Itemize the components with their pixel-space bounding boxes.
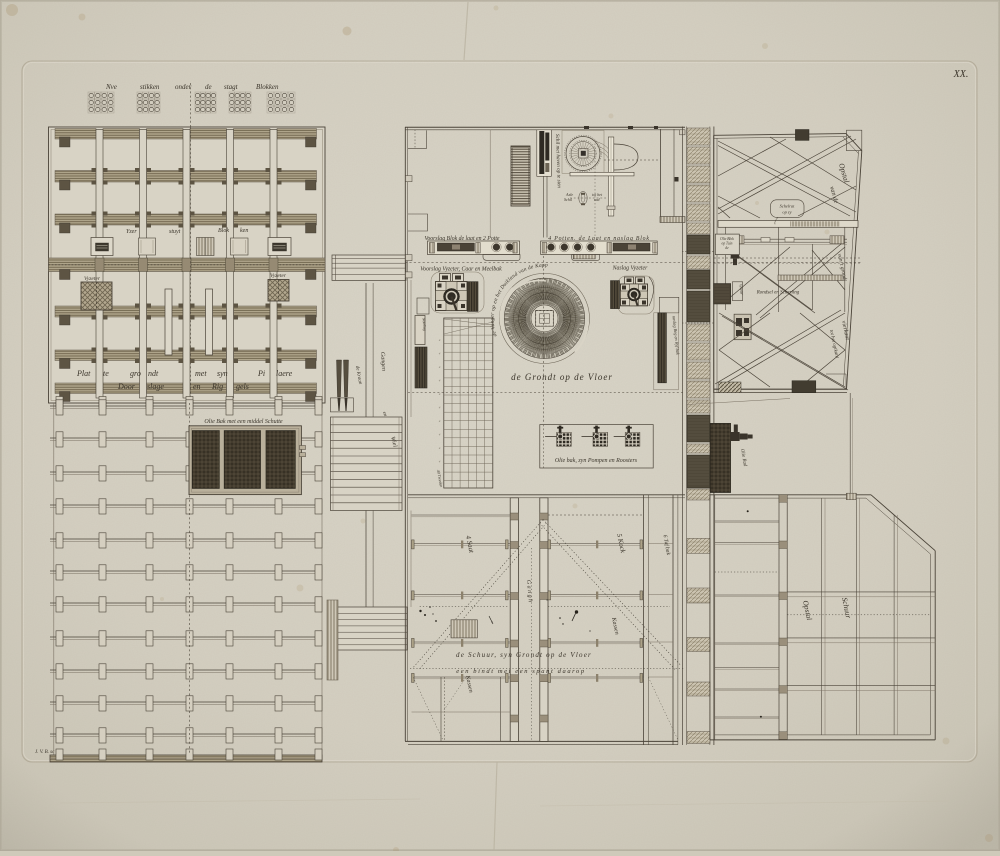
svg-text:de Schuur, syn Grondt op de Vl: de Schuur, syn Grondt op de Vloer (456, 651, 592, 659)
svg-text:Blokken: Blokken (256, 83, 279, 91)
svg-text:de Grondt op de Vloer: de Grondt op de Vloer (511, 372, 613, 382)
svg-text:op Tuin: op Tuin (722, 242, 733, 246)
svg-text:de: de (205, 83, 212, 91)
svg-text:Rig: Rig (211, 382, 223, 391)
svg-text:een bindt met een spant daarop: een bindt met een spant daarop (456, 668, 586, 675)
svg-text:laere: laere (276, 369, 293, 378)
svg-text:stuyt: stuyt (169, 229, 181, 235)
svg-text:de: de (725, 246, 729, 250)
svg-text:Vyzeter: Vyzeter (84, 276, 101, 282)
svg-text:te: te (103, 369, 109, 378)
svg-text:onder: onder (175, 83, 192, 91)
svg-text:Olie bak, zyn Pompen en Rooste: Olie bak, zyn Pompen en Roosters (555, 458, 638, 464)
svg-text:Olie Blok: Olie Blok (720, 237, 734, 241)
svg-text:Naslag Vyzeter: Naslag Vyzeter (612, 266, 648, 272)
svg-text:stikken: stikken (140, 83, 160, 91)
svg-text:Blok: Blok (218, 228, 229, 234)
svg-text:Voorslag Vyzeter, Caar en Meel: Voorslag Vyzeter, Caar en Meelbak (420, 267, 502, 273)
svg-text:en: en (193, 382, 201, 391)
svg-text:Schelrat: Schelrat (780, 204, 795, 209)
svg-text:Olie Bak met een middel Schutt: Olie Bak met een middel Schutte (204, 419, 282, 425)
svg-text:XX.: XX. (953, 69, 969, 80)
svg-text:met: met (195, 369, 207, 378)
svg-text:Yzer: Yzer (126, 229, 137, 235)
svg-text:Pi: Pi (257, 369, 265, 378)
svg-text:gels: gels (236, 382, 249, 391)
svg-text:Plat: Plat (76, 369, 91, 378)
svg-text:stagt: stagt (224, 83, 239, 91)
svg-text:Nve: Nve (105, 83, 117, 91)
svg-text:J. V. B. sc: J. V. B. sc (35, 750, 55, 755)
svg-text:Schil: Schil (564, 197, 573, 202)
svg-text:Rondsel en Scherling: Rondsel en Scherling (756, 291, 800, 296)
svg-text:slage: slage (147, 382, 164, 391)
svg-text:ndt: ndt (148, 369, 159, 378)
svg-text:ken: ken (240, 228, 248, 234)
svg-text:gro: gro (130, 369, 141, 378)
svg-text:Door: Door (117, 382, 136, 391)
svg-text:op zy: op zy (782, 210, 791, 215)
svg-text:Vyzeter: Vyzeter (270, 273, 287, 279)
svg-text:syn: syn (217, 369, 228, 378)
